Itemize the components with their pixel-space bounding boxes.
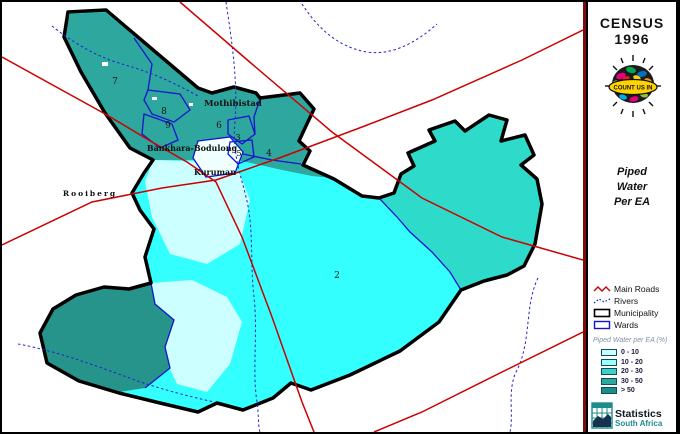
ward-number-3: 3 bbox=[235, 133, 240, 143]
legend-class-row: 30 - 50 bbox=[593, 377, 676, 386]
label-mothibistad: Mothibistad bbox=[204, 99, 262, 109]
class-swatch-0-10 bbox=[601, 349, 617, 356]
class-swatch-30-50 bbox=[601, 378, 617, 385]
stats-sa-grid-icon bbox=[592, 403, 612, 428]
map-svg: Mothibistad Bankhara-Bodulong Kuruman Ro… bbox=[2, 2, 583, 432]
class-label-20-30: 20 - 30 bbox=[621, 368, 643, 375]
label-bankhara-bodulong: Bankhara-Bodulong bbox=[147, 143, 238, 153]
legend-label-wards: Wards bbox=[614, 320, 638, 330]
label-rooiberg: Rooiberg bbox=[63, 189, 117, 198]
ward-number-9: 9 bbox=[165, 121, 171, 131]
logo-banner-text: COUNT US IN bbox=[614, 85, 653, 91]
class-label-0-10: 0 - 10 bbox=[621, 349, 639, 356]
ward-number-4: 4 bbox=[266, 149, 272, 159]
census-title: CENSUS 1996 bbox=[588, 15, 676, 47]
ea-speck bbox=[102, 62, 108, 66]
legend-label-municipality: Municipality bbox=[614, 308, 658, 318]
municipality-symbol bbox=[593, 308, 611, 318]
legend-class-row: > 50 bbox=[593, 386, 676, 395]
class-label-over-50: > 50 bbox=[621, 387, 635, 394]
main-roads-symbol bbox=[593, 284, 611, 294]
choropleth-legend: Piped Water per EA (%) 0 - 10 10 - 20 20… bbox=[593, 337, 676, 396]
class-swatch-over-50 bbox=[601, 387, 617, 394]
ward-number-5: 5 bbox=[236, 149, 241, 159]
census-title-line1: CENSUS bbox=[588, 15, 676, 31]
legend-class-row: 0 - 10 bbox=[593, 348, 676, 357]
legend-item-main-roads: Main Roads bbox=[593, 283, 675, 294]
class-swatch-10-20 bbox=[601, 359, 617, 366]
count-us-in-logo: COUNT US IN bbox=[601, 54, 665, 118]
map-title-line2: Water bbox=[588, 180, 676, 195]
map-area: Mothibistad Bankhara-Bodulong Kuruman Ro… bbox=[2, 2, 583, 432]
ea-speck bbox=[189, 103, 193, 106]
map-title: Piped Water Per EA bbox=[588, 165, 676, 210]
legend-item-municipality: Municipality bbox=[593, 307, 675, 318]
map-title-line1: Piped bbox=[588, 165, 676, 180]
legend-item-wards: Wards bbox=[593, 319, 675, 330]
label-kuruman: Kuruman bbox=[194, 167, 236, 177]
wards-symbol bbox=[593, 320, 611, 330]
river bbox=[302, 4, 437, 53]
ward-number-6: 6 bbox=[216, 121, 222, 131]
ward-number-2: 2 bbox=[334, 271, 340, 281]
class-swatch-20-30 bbox=[601, 368, 617, 375]
ea-speck bbox=[152, 97, 157, 100]
choropleth-legend-title: Piped Water per EA (%) bbox=[593, 337, 676, 344]
rivers-symbol bbox=[593, 296, 611, 306]
ward-number-8: 8 bbox=[161, 107, 167, 117]
stats-sa-country: South Africa bbox=[615, 419, 663, 428]
census-title-line2: 1996 bbox=[588, 31, 676, 47]
legend-item-rivers: Rivers bbox=[593, 295, 675, 306]
ward-number-7: 7 bbox=[112, 77, 118, 87]
legend-label-main-roads: Main Roads bbox=[614, 284, 659, 294]
legend-label-rivers: Rivers bbox=[614, 296, 638, 306]
census-map-page: Mothibistad Bankhara-Bodulong Kuruman Ro… bbox=[0, 0, 680, 434]
class-label-10-20: 10 - 20 bbox=[621, 359, 643, 366]
line-legend: Main Roads Rivers Municipality Wards bbox=[593, 283, 675, 331]
legend-class-row: 10 - 20 bbox=[593, 358, 676, 367]
stats-sa-logo: Statistics South Africa bbox=[591, 402, 676, 430]
info-panel: CENSUS 1996 bbox=[586, 2, 676, 432]
river bbox=[510, 278, 538, 432]
map-title-line3: Per EA bbox=[588, 195, 676, 210]
class-label-30-50: 30 - 50 bbox=[621, 378, 643, 385]
legend-class-row: 20 - 30 bbox=[593, 367, 676, 376]
